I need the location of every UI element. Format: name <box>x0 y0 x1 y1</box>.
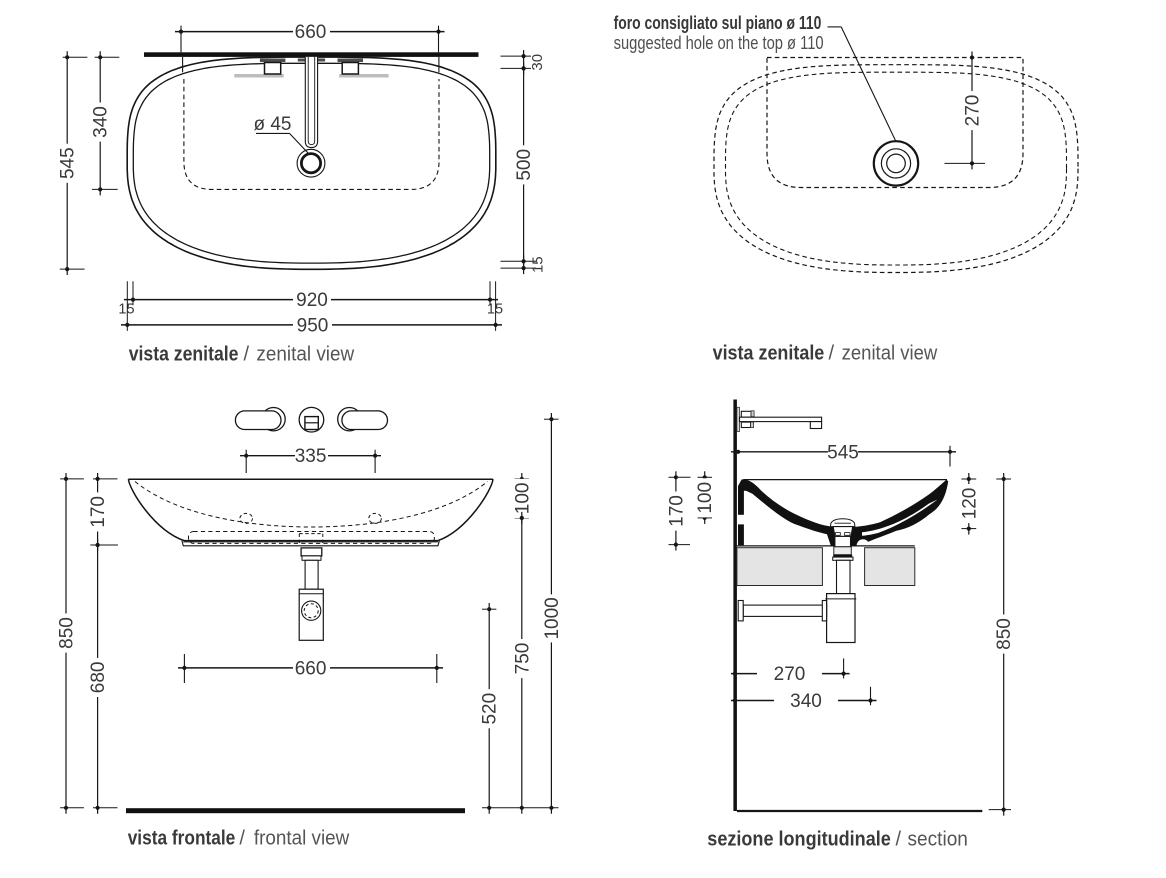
svg-text:100: 100 <box>695 482 716 514</box>
svg-text:vista zenitale: vista zenitale <box>713 343 825 365</box>
svg-text:vista zenitale: vista zenitale <box>129 343 239 365</box>
svg-text:1000: 1000 <box>542 597 563 639</box>
svg-text:15: 15 <box>487 302 503 318</box>
svg-text:frontal view: frontal view <box>254 827 350 849</box>
svg-text:660: 660 <box>295 658 327 679</box>
svg-text:680: 680 <box>88 662 109 694</box>
svg-text:suggested hole on the top ø 11: suggested hole on the top ø 110 <box>614 33 824 53</box>
svg-text:15: 15 <box>530 256 547 273</box>
svg-text:950: 950 <box>297 315 329 336</box>
svg-text:/: / <box>829 343 835 365</box>
svg-text:section: section <box>908 828 968 850</box>
svg-text:270: 270 <box>774 664 806 685</box>
svg-text:335: 335 <box>295 446 327 467</box>
svg-text:ø 45: ø 45 <box>253 114 291 135</box>
svg-text:750: 750 <box>512 643 533 675</box>
svg-text:15: 15 <box>118 302 134 318</box>
svg-text:120: 120 <box>959 488 980 520</box>
svg-text:500: 500 <box>514 149 535 181</box>
svg-text:660: 660 <box>295 22 327 43</box>
svg-text:520: 520 <box>480 693 501 725</box>
svg-text:340: 340 <box>790 691 822 712</box>
svg-text:/: / <box>896 828 902 850</box>
svg-text:/: / <box>239 827 245 849</box>
svg-text:30: 30 <box>529 54 546 71</box>
svg-text:545: 545 <box>58 147 79 179</box>
svg-text:270: 270 <box>963 95 984 127</box>
svg-text:340: 340 <box>91 106 112 138</box>
svg-text:170: 170 <box>88 496 109 528</box>
svg-text:zenital view: zenital view <box>842 343 938 365</box>
svg-text:/: / <box>244 343 250 365</box>
svg-text:850: 850 <box>994 618 1015 650</box>
svg-text:545: 545 <box>827 442 859 463</box>
svg-text:100: 100 <box>512 483 533 515</box>
svg-text:vista frontale: vista frontale <box>128 827 236 849</box>
svg-text:zenital view: zenital view <box>256 343 354 365</box>
svg-text:170: 170 <box>666 495 687 527</box>
svg-text:920: 920 <box>296 290 328 311</box>
svg-text:foro consigliato sul piano ø 1: foro consigliato sul piano ø 110 <box>614 13 822 33</box>
svg-text:sezione longitudinale: sezione longitudinale <box>707 828 891 850</box>
svg-text:850: 850 <box>57 617 78 649</box>
